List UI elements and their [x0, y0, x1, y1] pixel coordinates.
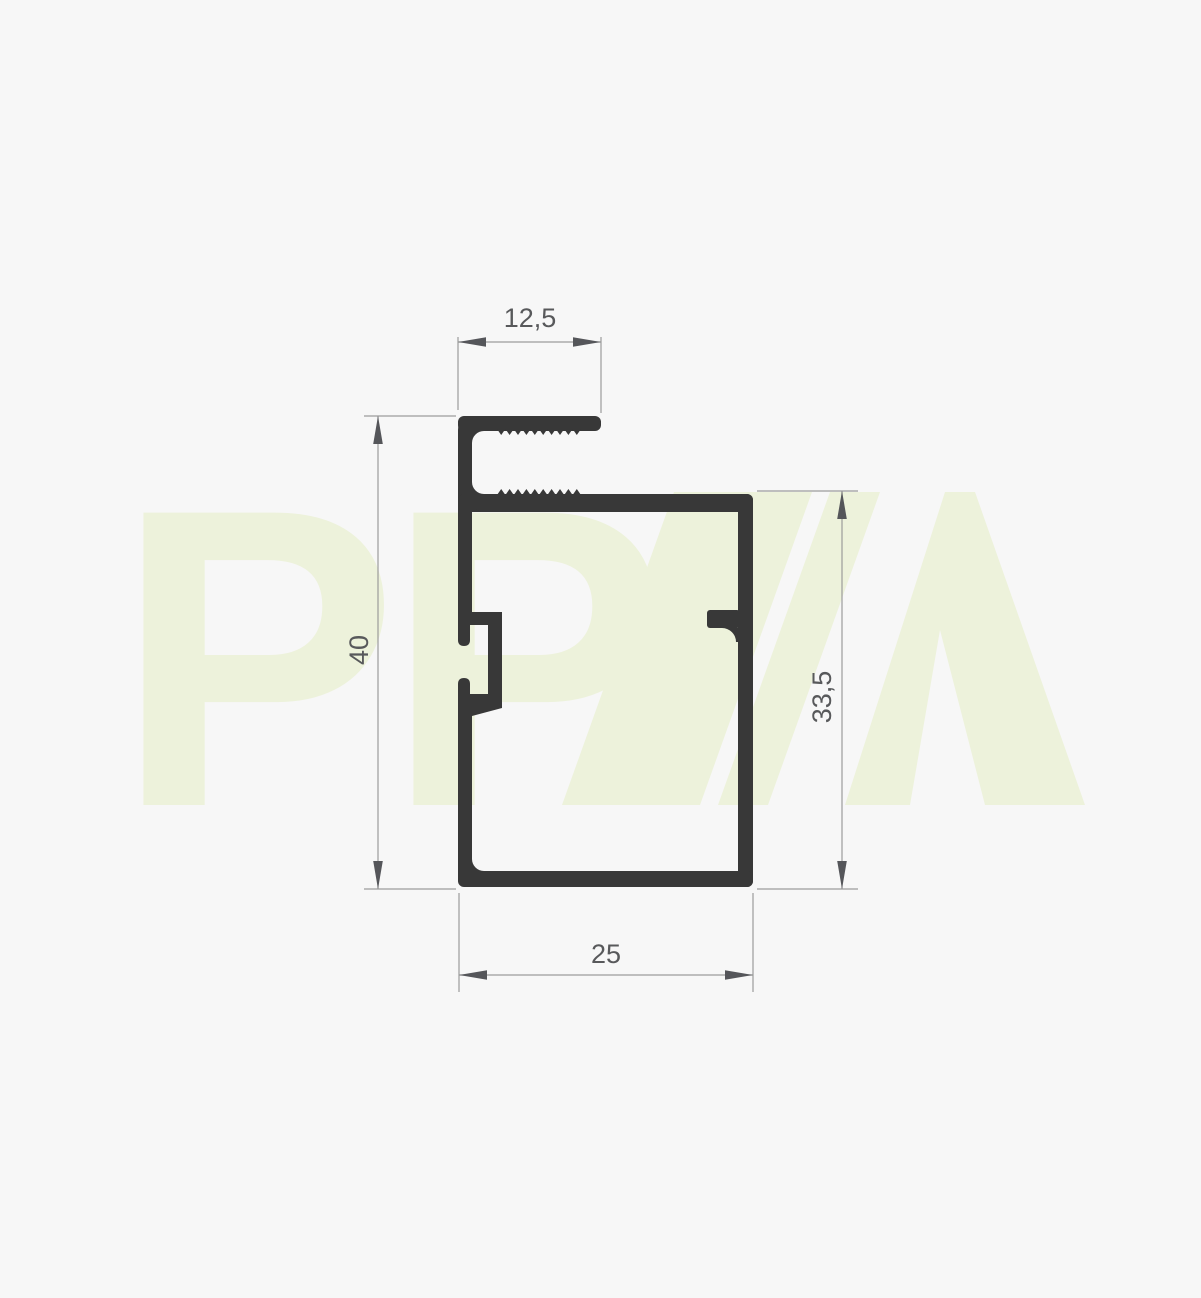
arrow-top-right	[573, 337, 601, 347]
profile-slot-lower-lip	[458, 678, 470, 694]
profile-right-wall	[738, 494, 753, 887]
arrow-bottom-left	[459, 970, 487, 980]
profile-slot-back-bar	[488, 612, 502, 708]
dim-label-overall-height: 40	[344, 635, 374, 665]
profile-left-wall-upper	[458, 416, 472, 625]
drawing-canvas: P P	[0, 0, 1201, 1298]
watermark-logo: P P	[115, 421, 1085, 896]
dim-label-top-width: 12,5	[504, 303, 557, 333]
profile-left-wall-lower	[458, 694, 472, 880]
profile-bottom-bar	[458, 871, 753, 887]
arrow-top-left	[458, 337, 486, 347]
arrow-bottom-right	[725, 970, 753, 980]
dim-label-bottom-width: 25	[591, 939, 621, 969]
dim-label-inner-height: 33,5	[807, 671, 837, 724]
profile-right-tab	[707, 610, 740, 628]
arrow-right-down	[837, 861, 847, 889]
profile-slot-upper-lip	[458, 625, 470, 646]
watermark-letter-a-shape	[845, 492, 1085, 805]
technical-drawing: P P	[0, 0, 1201, 1298]
